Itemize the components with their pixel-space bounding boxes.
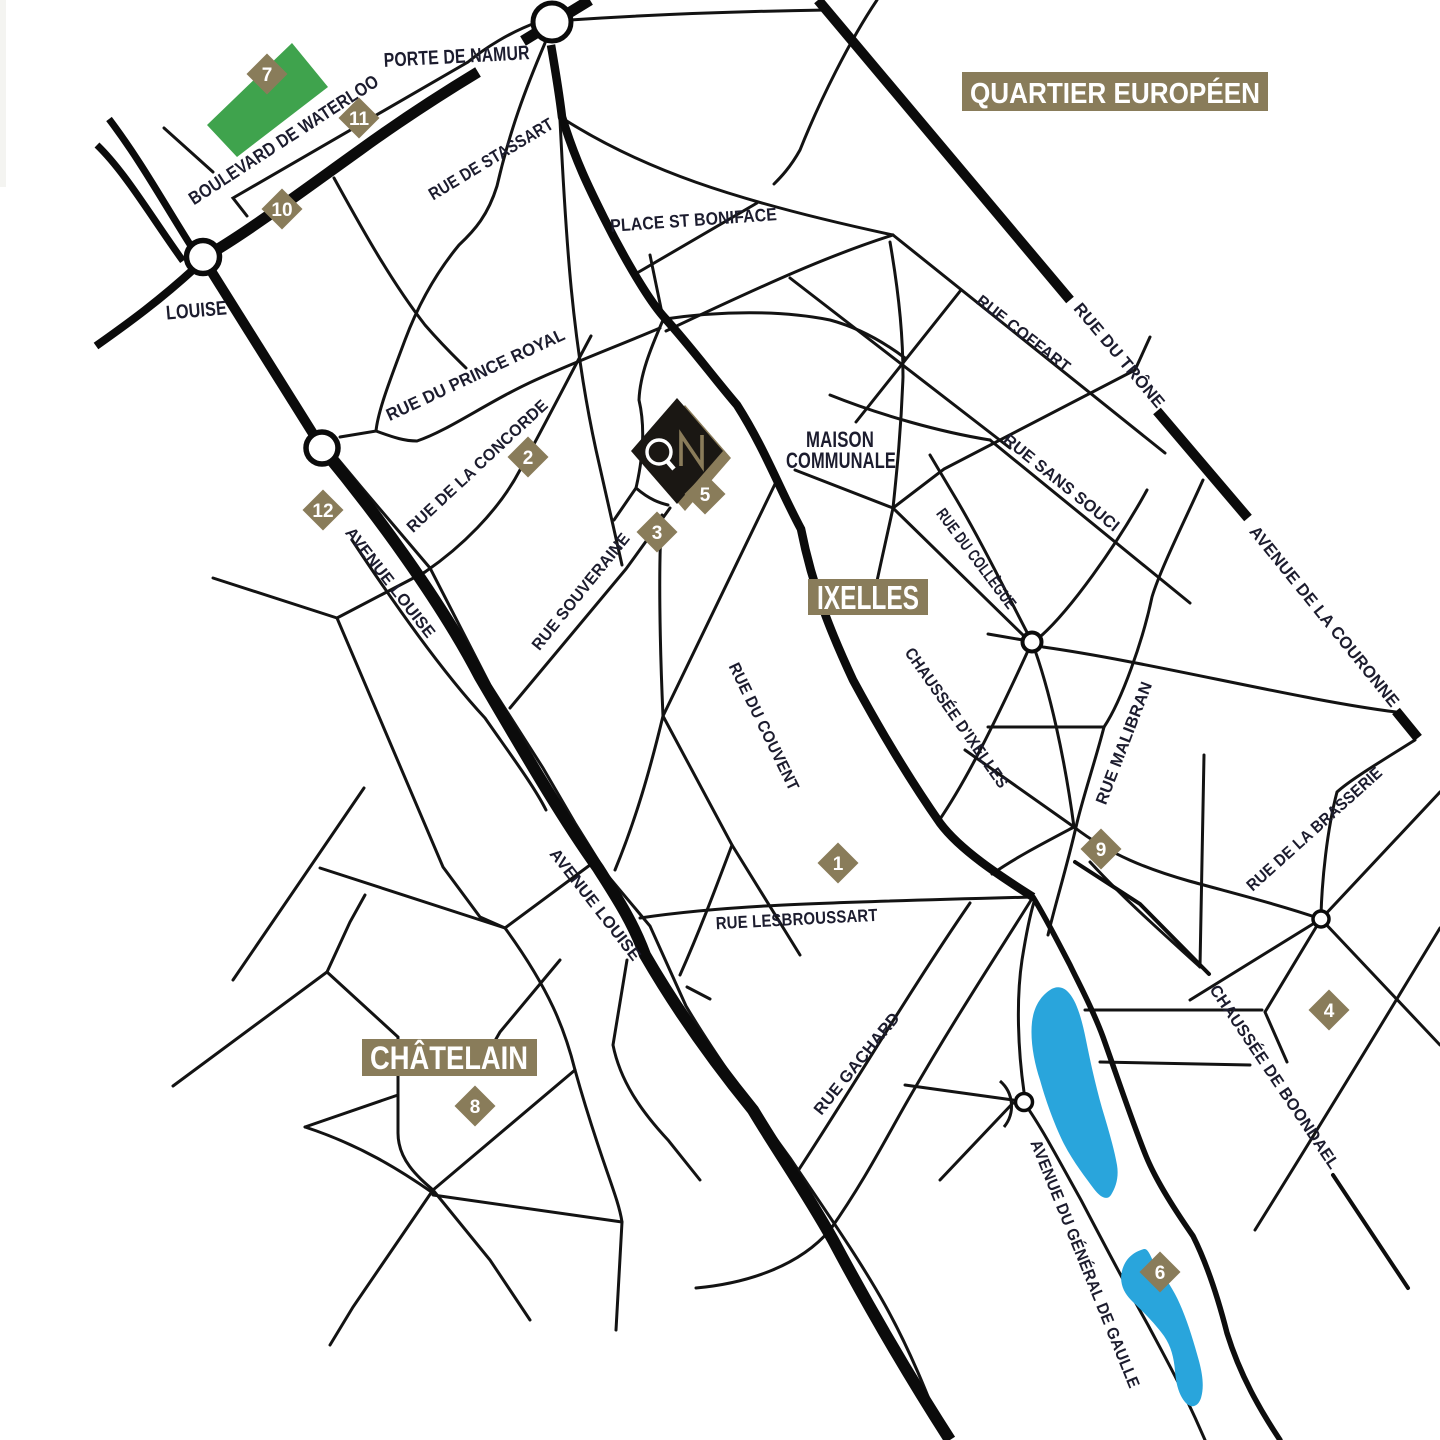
svg-text:QUARTIER EUROPÉEN: QUARTIER EUROPÉEN xyxy=(970,76,1260,110)
svg-text:CHÂTELAIN: CHÂTELAIN xyxy=(370,1040,528,1076)
svg-text:9: 9 xyxy=(1096,840,1107,861)
svg-text:6: 6 xyxy=(1155,1263,1166,1284)
svg-text:7: 7 xyxy=(262,65,273,86)
svg-text:5: 5 xyxy=(700,485,711,506)
svg-text:COMMUNALE: COMMUNALE xyxy=(786,448,896,473)
svg-text:10: 10 xyxy=(271,200,292,221)
svg-text:2: 2 xyxy=(523,448,534,469)
svg-text:8: 8 xyxy=(470,1097,481,1118)
svg-text:11: 11 xyxy=(349,109,370,130)
svg-text:12: 12 xyxy=(312,501,333,522)
svg-text:IXELLES: IXELLES xyxy=(817,579,919,616)
svg-text:4: 4 xyxy=(1324,1001,1335,1022)
svg-text:3: 3 xyxy=(652,523,663,544)
svg-text:1: 1 xyxy=(833,854,844,875)
